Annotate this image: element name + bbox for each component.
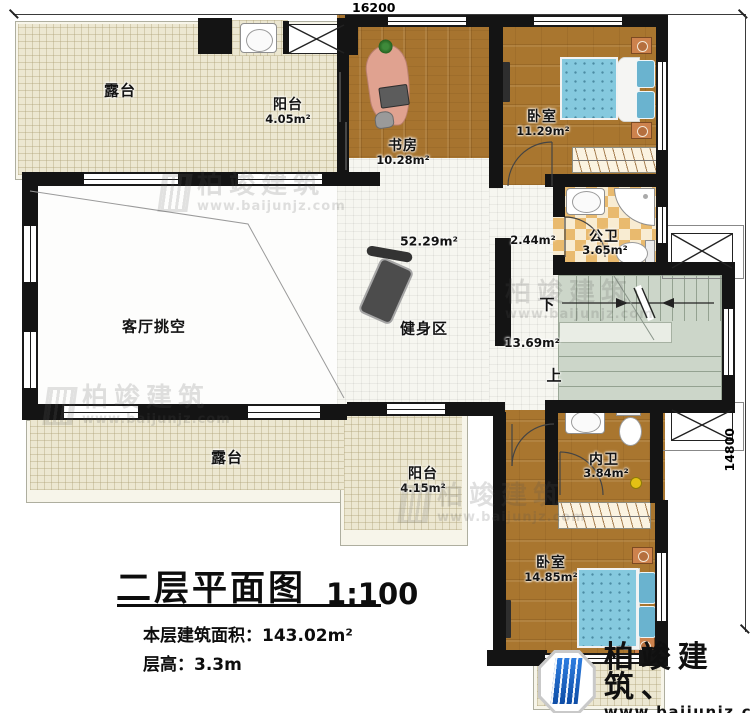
bed-top <box>560 57 618 120</box>
wall <box>445 402 505 416</box>
dimension-line-right <box>745 14 746 632</box>
wall <box>493 412 506 660</box>
room-label-balcony-top: 阳台 <box>273 94 303 114</box>
window <box>656 62 668 150</box>
room-label-living-void: 客厅挑空 <box>122 316 186 337</box>
nightstand <box>631 37 652 54</box>
wall <box>553 262 735 275</box>
wall <box>655 500 668 555</box>
room-area-stair-hall: 13.69m² <box>504 336 560 350</box>
wall <box>320 404 347 420</box>
window <box>64 404 138 420</box>
window <box>655 553 668 623</box>
window <box>238 172 322 186</box>
computer-monitor <box>378 84 410 109</box>
room-label-study: 书房 <box>388 135 418 155</box>
pillow <box>638 572 656 604</box>
balcony-bottom-floor <box>344 410 462 530</box>
wall <box>22 404 64 420</box>
nightstand <box>631 122 652 139</box>
wall <box>283 21 289 54</box>
wall <box>198 18 232 54</box>
room-label-terrace-bottom: 露台 <box>211 447 243 468</box>
room-area-balcony-bottom: 4.15m² <box>400 481 445 495</box>
living-void-floor <box>22 172 347 420</box>
room-area-bedroom-bottom: 14.85m² <box>524 570 577 584</box>
floorplan-page: 露台 阳台 4.05m² 书房 10.28m² 卧室 11.29m² 2.44m… <box>0 0 750 713</box>
shower-drain <box>643 194 648 199</box>
toilet-bowl <box>619 417 642 446</box>
wall <box>656 15 668 62</box>
terrace-bottom-floor <box>30 420 353 490</box>
wall <box>350 15 388 27</box>
wall <box>495 238 511 346</box>
wall <box>347 402 387 416</box>
room-area-public-bath: 3.65m² <box>582 243 627 257</box>
brand-logo: 柏竣建筑、 www.baijunjz.com <box>538 643 750 713</box>
window <box>22 332 38 388</box>
wall <box>22 186 38 226</box>
window <box>534 15 622 27</box>
brand-logo-icon <box>538 650 596 713</box>
wall <box>22 172 84 186</box>
wall <box>138 404 248 420</box>
treadmill <box>351 244 432 327</box>
treadmill-belt <box>357 256 414 325</box>
window <box>722 309 735 375</box>
room-label-bedroom-top: 卧室 <box>527 106 557 126</box>
wall <box>22 282 38 332</box>
wall <box>650 400 663 503</box>
room-area-balcony-top: 4.05m² <box>265 112 310 126</box>
desk-chair <box>374 110 395 129</box>
wardrobe-bottom <box>558 502 651 529</box>
wall <box>545 174 668 187</box>
lamp <box>630 477 642 489</box>
window <box>387 402 445 416</box>
washbasin <box>572 191 601 213</box>
wall <box>553 187 565 217</box>
window <box>84 172 178 186</box>
wall <box>722 275 735 309</box>
window <box>388 15 466 27</box>
dimension-top-value: 16200 <box>352 0 396 15</box>
room-area-gym: 52.29m² <box>400 234 458 249</box>
room-area-study: 10.28m² <box>376 153 429 167</box>
stairs-upper-treads <box>576 276 721 321</box>
laundry-basin-bowl <box>246 29 273 52</box>
room-label-bedroom-bottom: 卧室 <box>536 552 566 572</box>
bed-bottom <box>577 568 638 648</box>
pillow <box>638 606 656 638</box>
room-area-ensuite-bath: 3.84m² <box>583 466 628 480</box>
stairs-lower-treads <box>559 344 721 402</box>
brand-mark: 、 <box>641 670 671 705</box>
floor-area-line: 本层建筑面积：143.02m² <box>143 621 353 646</box>
wall <box>337 18 349 172</box>
wall <box>656 187 668 207</box>
dimension-right-value: 14800 <box>722 428 737 472</box>
brand-building-glyph <box>551 658 583 704</box>
floor-area-label: 本层建筑面积： <box>143 626 262 646</box>
window <box>656 207 668 243</box>
window <box>22 226 38 282</box>
floor-area-value: 143.02m² <box>262 626 353 646</box>
title-underline <box>117 604 381 607</box>
washbasin <box>571 411 601 433</box>
floor-height-label: 层高： <box>143 655 194 675</box>
stairs-landing <box>559 322 672 343</box>
room-area-hall-upper: 2.44m² <box>510 233 555 247</box>
room-area-bedroom-top: 11.29m² <box>516 124 569 138</box>
tv <box>502 62 510 102</box>
floor-height-line: 层高：3.3m <box>143 650 242 675</box>
pillow <box>636 91 655 119</box>
wall <box>545 400 558 505</box>
brand-website: www.baijunjz.com <box>604 703 750 713</box>
floor-height-value: 3.3m <box>194 655 242 675</box>
pillow <box>636 60 655 88</box>
wall <box>545 400 735 413</box>
room-label-gym: 健身区 <box>400 318 448 339</box>
room-label-terrace-top: 露台 <box>104 80 136 101</box>
wardrobe-top <box>572 147 658 173</box>
wall <box>322 172 346 186</box>
stairs-up-label: 上 <box>546 365 561 386</box>
stairs-down-label: 下 <box>539 294 554 315</box>
nightstand <box>632 547 653 564</box>
room-label-balcony-bottom: 阳台 <box>408 463 438 483</box>
wall <box>489 15 503 188</box>
wall <box>178 172 238 186</box>
window <box>248 404 320 420</box>
